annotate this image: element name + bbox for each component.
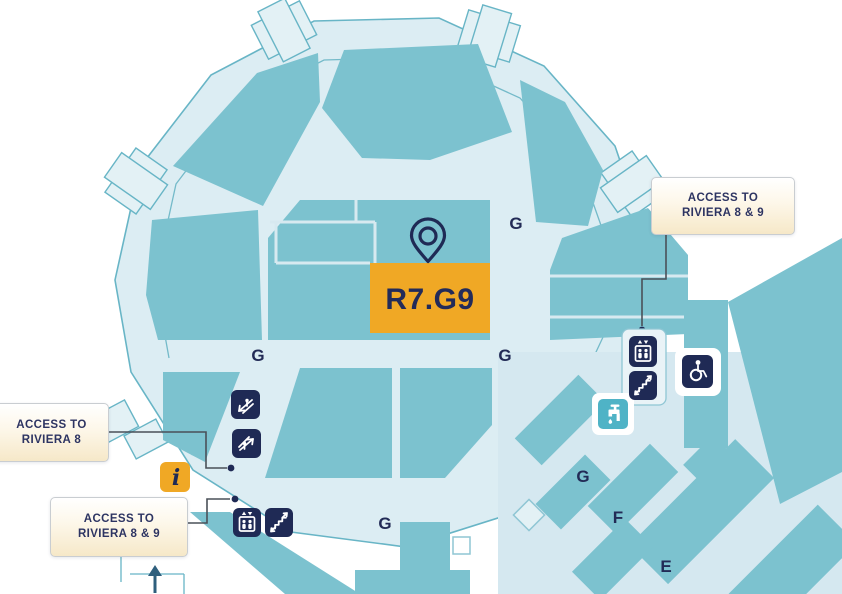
access-label-riviera-8-9-bottom: ACCESS TO RIVIERA 8 & 9: [50, 497, 188, 557]
elevator-icon: [233, 508, 261, 537]
access-label-riviera-8: ACCESS TO RIVIERA 8: [0, 403, 109, 462]
escalator-down-icon: [231, 390, 260, 419]
svg-text:i: i: [172, 465, 180, 491]
bottom-left-details: [121, 556, 184, 594]
info-icon: i: [160, 462, 190, 492]
zone-letter-g: G: [378, 514, 391, 533]
drinking-water-icon: [598, 399, 628, 429]
access-label-line2: RIVIERA 8 & 9: [78, 527, 160, 542]
zone-letter-f: F: [613, 508, 623, 527]
access-label-line1: ACCESS TO: [84, 512, 154, 527]
booth-r7-g9[interactable]: R7.G9: [370, 263, 490, 333]
entrance-arrow-icon: [148, 565, 162, 593]
zone-letter-e: E: [660, 557, 671, 576]
access-label-line2: RIVIERA 8 & 9: [682, 206, 764, 221]
zone-letter-g: G: [576, 467, 589, 486]
floor-plan-viewer: i: [0, 0, 842, 594]
zone-letter-g: G: [509, 214, 522, 233]
booth-id-label: R7.G9: [385, 283, 474, 316]
wheelchair-accessible-icon: [682, 355, 713, 388]
elevator-icon: [629, 336, 657, 367]
access-label-line2: RIVIERA 8: [22, 433, 81, 448]
escalator-up-icon: [232, 429, 261, 458]
stairs-icon: [629, 371, 657, 400]
zone-letter-g: G: [498, 346, 511, 365]
stairs-icon: [265, 508, 293, 537]
access-label-riviera-8-9-top: ACCESS TO RIVIERA 8 & 9: [651, 177, 795, 235]
access-label-line1: ACCESS TO: [688, 191, 758, 206]
zone-letter-g: G: [251, 346, 264, 365]
access-label-line1: ACCESS TO: [16, 418, 86, 433]
